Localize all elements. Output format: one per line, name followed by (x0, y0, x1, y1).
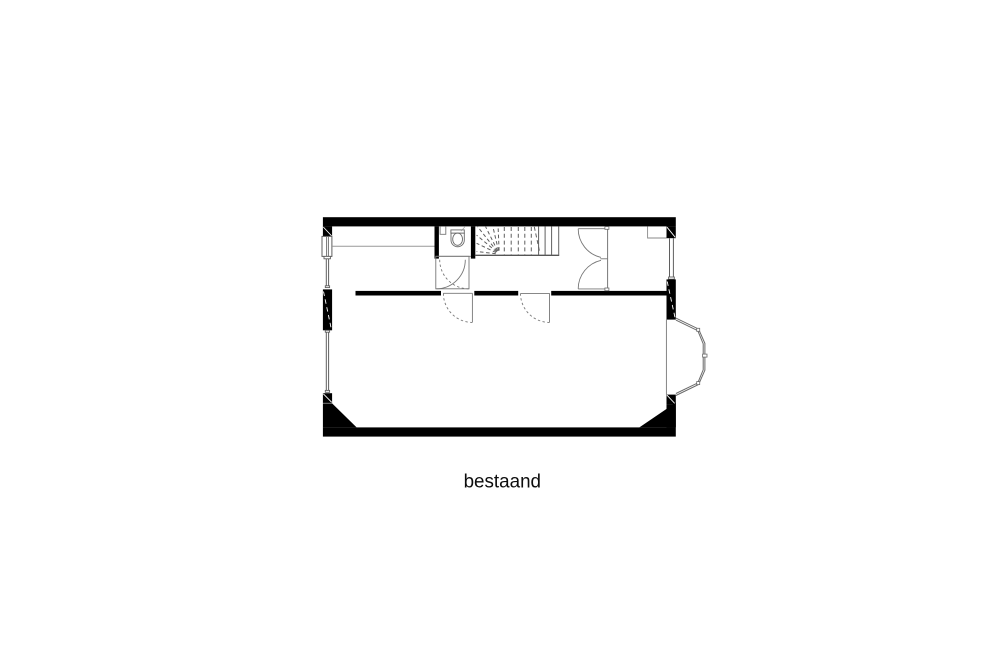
svg-text:bestaand: bestaand (464, 471, 541, 493)
